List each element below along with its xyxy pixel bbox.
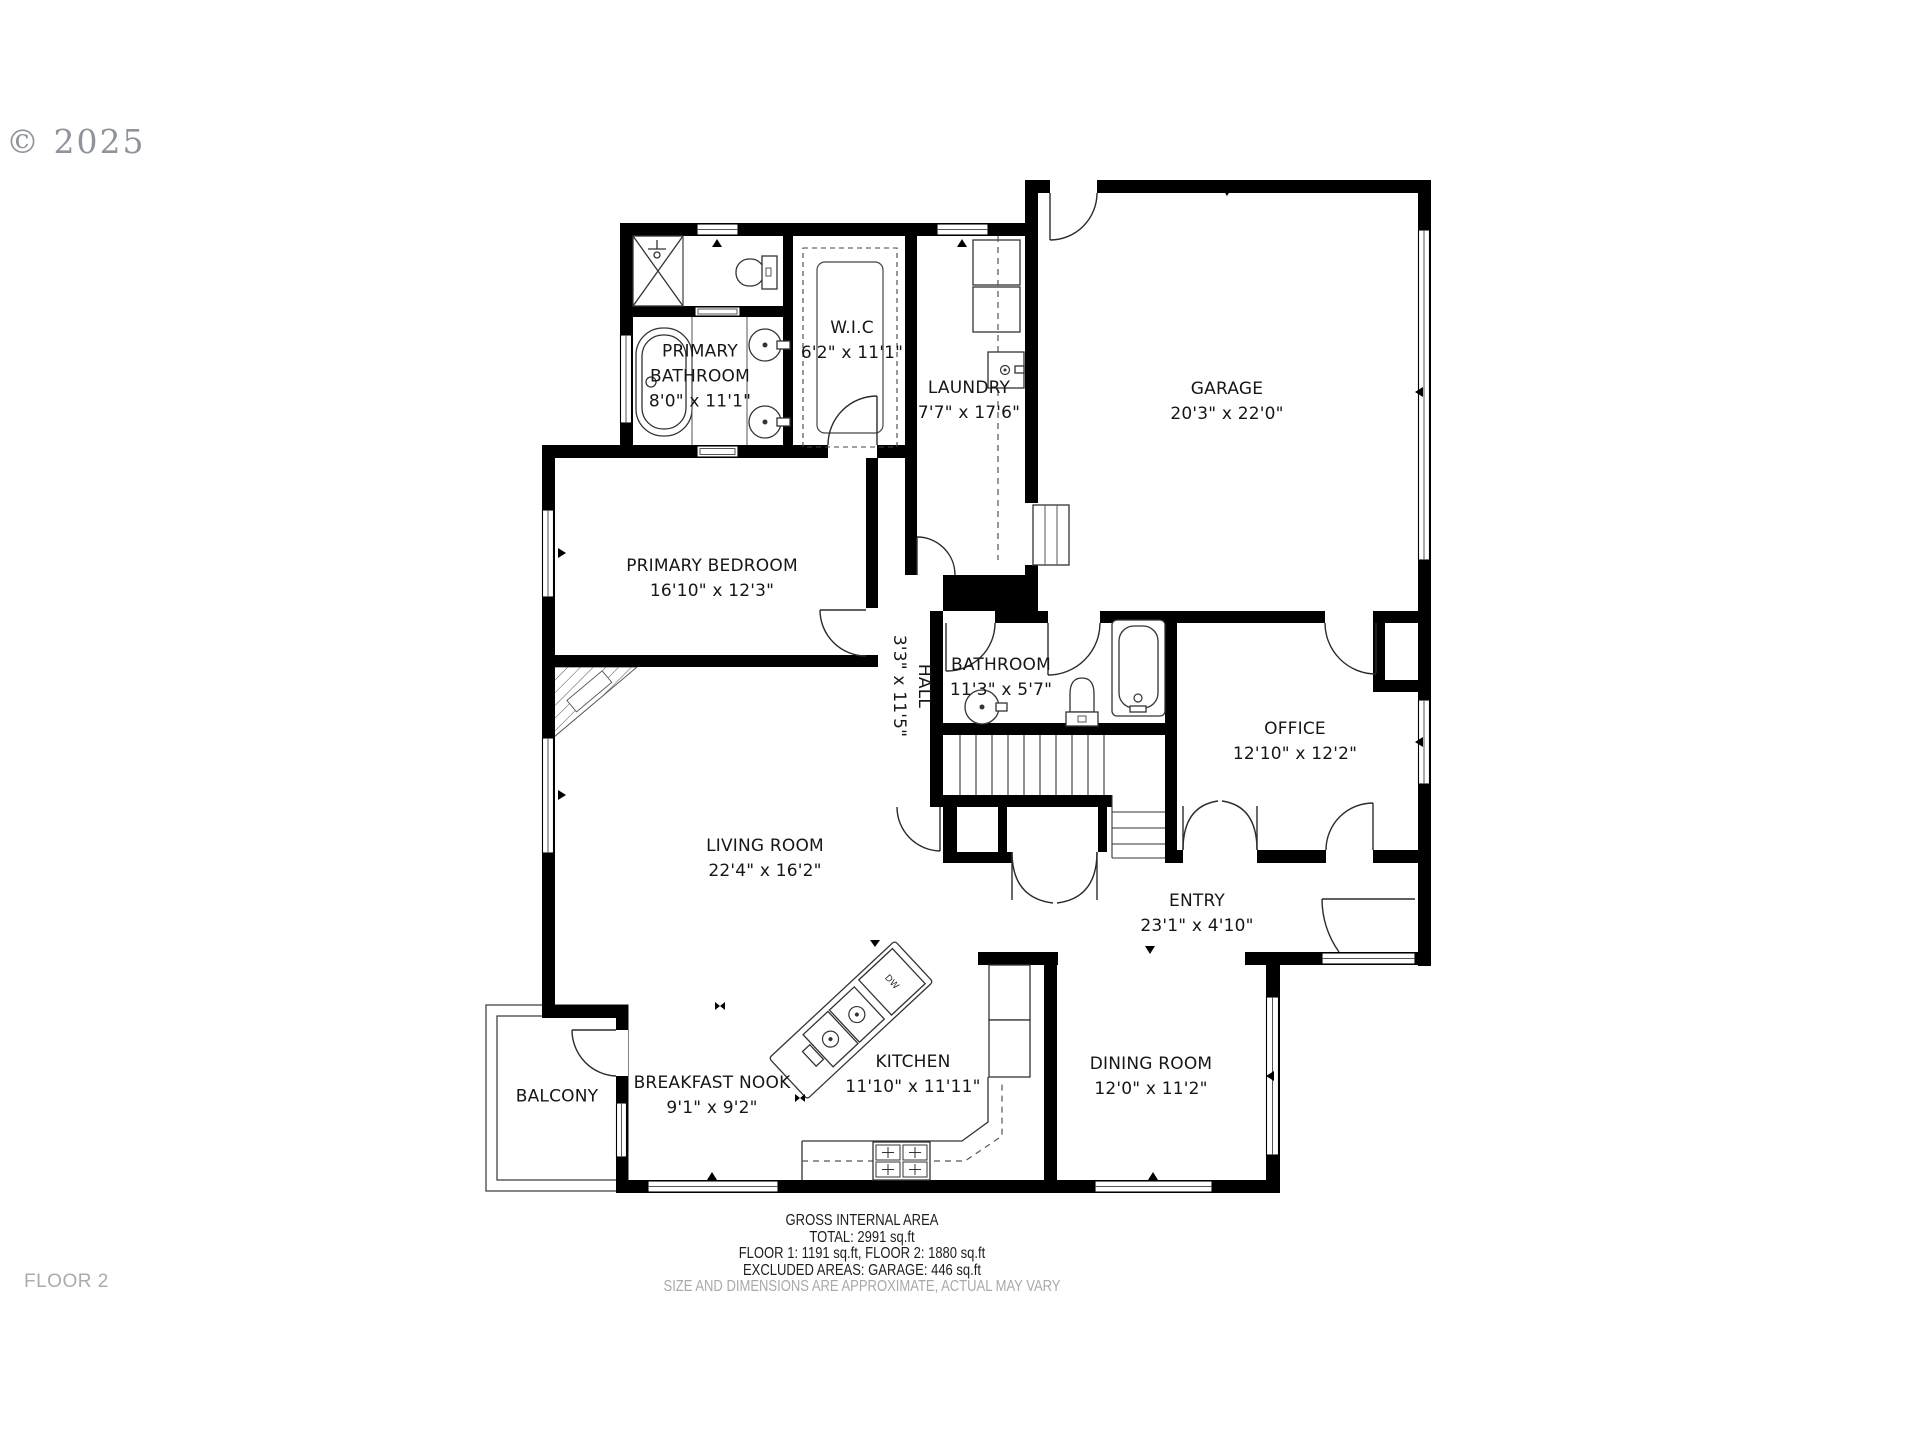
window-bedroom-left [543, 510, 554, 597]
window-living-left [543, 738, 554, 853]
toilet [736, 256, 777, 289]
room-label-primary-bathroom: PRIMARY BATHROOM 8'0" x 11'1" [639, 340, 761, 415]
room-label-kitchen: KITCHEN 11'10" x 11'11" [845, 1050, 980, 1100]
stove [873, 1142, 930, 1180]
garage-service-door [1050, 193, 1097, 240]
room-label-office: OFFICE 12'10" x 12'2" [1233, 717, 1357, 767]
room-label-entry: ENTRY 23'1" x 4'10" [1140, 889, 1253, 939]
pocket-door-bathroom [695, 307, 740, 316]
front-door-sill [1322, 953, 1415, 964]
window-nook-balcony [617, 1103, 627, 1157]
garage-entry-door [1048, 623, 1100, 675]
hall-living-door [897, 807, 940, 851]
room-label-hall: HALL 3'3" x 11'5" [886, 635, 936, 737]
garage-fixtures [1033, 505, 1069, 565]
front-door [1322, 899, 1415, 952]
window-dining-bottom [1095, 1181, 1212, 1192]
area-summary: GROSS INTERNAL AREA TOTAL: 2991 sq.ft FL… [526, 1213, 1198, 1296]
garage-laundry-door [1033, 505, 1069, 565]
disclaimer: SIZE AND DIMENSIONS ARE APPROXIMATE, ACT… [526, 1279, 1198, 1296]
balcony-door [572, 1030, 616, 1076]
room-label-primary-bedroom: PRIMARY BEDROOM 16'10" x 12'3" [626, 554, 798, 604]
window-nook-bottom [648, 1181, 778, 1192]
room-label-balcony: BALCONY [516, 1085, 599, 1110]
toilet-2 [1066, 678, 1098, 726]
bedroom-door [820, 610, 866, 656]
floor-label: FLOOR 2 [24, 1271, 109, 1293]
bathtub-2 [1112, 620, 1165, 716]
window-bath-top [697, 224, 738, 235]
entry-closet-doors [1012, 852, 1097, 903]
excluded-areas: EXCLUDED AREAS: GARAGE: 446 sq.ft [526, 1263, 1198, 1280]
floorplan-page: DW [0, 0, 1920, 1440]
gross-area-title: GROSS INTERNAL AREA [526, 1213, 1198, 1230]
copyright-watermark: © 2025 [6, 122, 145, 161]
window-laundry-top [937, 224, 988, 235]
room-label-garage: GARAGE 20'3" x 22'0" [1170, 377, 1283, 427]
room-label-dining-room: DINING ROOM 12'0" x 11'2" [1090, 1052, 1213, 1102]
office-double-doors [1183, 801, 1257, 850]
laundry-door [917, 537, 955, 575]
office-closet-door [1325, 623, 1376, 674]
sloped-hatch-area [554, 667, 637, 737]
shower [633, 236, 683, 306]
room-label-breakfast-nook: BREAKFAST NOOK 9'1" x 9'2" [634, 1071, 791, 1121]
total-area: TOTAL: 2991 sq.ft [526, 1230, 1198, 1247]
floor-areas: FLOOR 1: 1191 sq.ft, FLOOR 2: 1880 sq.ft [526, 1246, 1198, 1263]
office-side-door [1326, 803, 1373, 850]
pocket-door-bedroom [697, 446, 738, 457]
window-bath-left [621, 335, 632, 423]
wic-door [828, 396, 877, 445]
room-label-laundry: LAUNDRY 7'7" x 17'6" [918, 376, 1020, 426]
room-label-wic: W.I.C 6'2" x 11'1" [801, 316, 903, 366]
room-label-living-room: LIVING ROOM 22'4" x 16'2" [706, 834, 824, 884]
room-label-bathroom: BATHROOM 11'3" x 5'7" [950, 653, 1052, 703]
